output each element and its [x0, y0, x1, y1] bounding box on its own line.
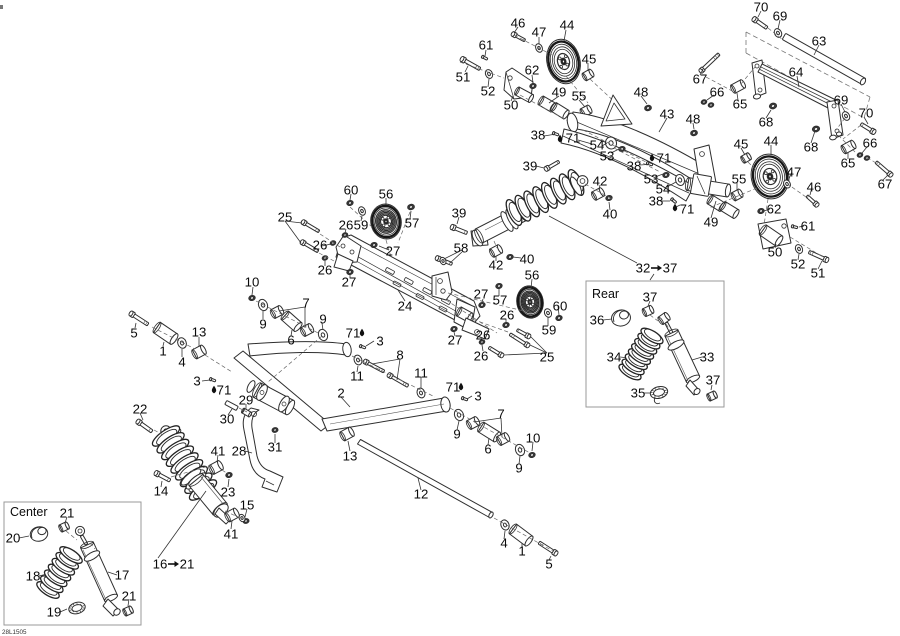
svg-text:47: 47	[532, 25, 547, 40]
svg-text:27: 27	[448, 333, 463, 348]
svg-text:19: 19	[47, 605, 62, 620]
svg-text:46: 46	[807, 180, 822, 195]
svg-text:4: 4	[178, 355, 185, 370]
svg-text:21: 21	[60, 506, 75, 521]
svg-text:1: 1	[518, 544, 525, 559]
svg-text:51: 51	[456, 70, 471, 85]
svg-text:52: 52	[791, 257, 806, 272]
svg-text:53: 53	[600, 149, 615, 164]
svg-text:26: 26	[474, 349, 489, 364]
svg-text:71: 71	[657, 151, 672, 166]
svg-text:44: 44	[764, 134, 779, 149]
svg-text:9: 9	[259, 317, 266, 332]
svg-text:26: 26	[476, 328, 491, 343]
svg-text:65: 65	[733, 97, 748, 112]
svg-text:31: 31	[268, 440, 283, 455]
svg-text:3: 3	[474, 389, 481, 404]
svg-text:29: 29	[239, 393, 254, 408]
svg-text:47: 47	[787, 165, 802, 180]
svg-text:11: 11	[414, 366, 428, 381]
svg-text:61: 61	[479, 38, 494, 53]
svg-text:69: 69	[834, 93, 849, 108]
svg-text:38: 38	[649, 194, 664, 209]
svg-text:26: 26	[318, 263, 333, 278]
svg-text:41: 41	[224, 527, 239, 542]
svg-text:68: 68	[804, 140, 819, 155]
svg-text:71: 71	[217, 383, 232, 398]
svg-text:30: 30	[220, 412, 235, 427]
svg-text:16: 16	[153, 557, 168, 572]
svg-text:67: 67	[693, 72, 708, 87]
svg-text:24: 24	[398, 299, 413, 314]
svg-text:39: 39	[452, 206, 467, 221]
svg-text:65: 65	[841, 156, 856, 171]
svg-text:5: 5	[130, 326, 137, 341]
svg-text:40: 40	[603, 207, 618, 222]
svg-text:71: 71	[346, 326, 361, 341]
svg-text:49: 49	[704, 215, 719, 230]
svg-text:Rear: Rear	[592, 287, 619, 301]
svg-text:58: 58	[454, 241, 469, 256]
svg-text:52: 52	[481, 84, 496, 99]
svg-text:70: 70	[859, 106, 874, 121]
svg-text:27: 27	[342, 275, 357, 290]
svg-text:37: 37	[706, 373, 721, 388]
svg-text:66: 66	[710, 85, 725, 100]
svg-text:5: 5	[545, 557, 552, 572]
svg-text:13: 13	[343, 449, 358, 464]
svg-text:27: 27	[386, 244, 401, 259]
svg-text:22: 22	[133, 402, 148, 417]
svg-text:2: 2	[337, 386, 344, 401]
svg-text:17: 17	[115, 568, 130, 583]
svg-text:13: 13	[192, 325, 207, 340]
svg-text:56: 56	[525, 268, 540, 283]
svg-text:46: 46	[511, 16, 526, 31]
svg-text:42: 42	[489, 258, 504, 273]
svg-text:45: 45	[734, 137, 749, 152]
svg-text:7: 7	[302, 296, 309, 311]
svg-text:62: 62	[767, 202, 782, 217]
svg-text:60: 60	[344, 183, 359, 198]
svg-text:37: 37	[663, 261, 678, 276]
svg-text:8: 8	[396, 348, 403, 363]
svg-text:9: 9	[319, 312, 326, 327]
svg-text:7: 7	[497, 407, 504, 422]
svg-text:18: 18	[26, 569, 41, 584]
svg-text:42: 42	[593, 174, 608, 189]
svg-text:11: 11	[350, 369, 364, 384]
svg-text:25: 25	[278, 210, 293, 225]
svg-text:35: 35	[631, 386, 646, 401]
svg-text:21: 21	[122, 589, 137, 604]
svg-text:43: 43	[660, 107, 675, 122]
svg-text:57: 57	[405, 216, 420, 231]
svg-text:28L1505: 28L1505	[2, 629, 27, 636]
svg-text:56: 56	[379, 187, 394, 202]
svg-text:37: 37	[643, 290, 658, 305]
svg-text:23: 23	[221, 485, 236, 500]
svg-text:48: 48	[634, 85, 649, 100]
svg-text:40: 40	[520, 252, 535, 267]
svg-text:44: 44	[560, 18, 575, 33]
svg-text:51: 51	[811, 266, 826, 281]
svg-text:21: 21	[180, 557, 195, 572]
svg-text:67: 67	[878, 177, 893, 192]
svg-text:33: 33	[700, 350, 715, 365]
svg-text:28: 28	[232, 444, 247, 459]
svg-text:26: 26	[339, 218, 354, 233]
svg-text:66: 66	[863, 136, 878, 151]
svg-text:15: 15	[240, 498, 255, 513]
svg-text:9: 9	[453, 427, 460, 442]
svg-text:63: 63	[812, 34, 827, 49]
svg-text:68: 68	[759, 115, 774, 130]
svg-text:59: 59	[542, 323, 557, 338]
svg-text:69: 69	[773, 9, 788, 24]
svg-text:55: 55	[732, 172, 747, 187]
svg-text:50: 50	[504, 98, 519, 113]
svg-text:25: 25	[540, 350, 555, 365]
svg-text:9: 9	[515, 461, 522, 476]
svg-text:39: 39	[523, 159, 538, 174]
svg-text:38: 38	[531, 128, 546, 143]
svg-text:34: 34	[607, 350, 622, 365]
svg-text:45: 45	[582, 52, 597, 67]
svg-text:26: 26	[313, 238, 328, 253]
svg-text:27: 27	[474, 287, 489, 302]
svg-text:59: 59	[354, 218, 369, 233]
svg-text:10: 10	[245, 275, 260, 290]
svg-text:26: 26	[500, 308, 515, 323]
svg-text:14: 14	[154, 484, 169, 499]
svg-text:6: 6	[287, 333, 294, 348]
svg-text:61: 61	[801, 219, 816, 234]
svg-text:49: 49	[552, 85, 567, 100]
svg-text:70: 70	[754, 0, 769, 15]
svg-text:6: 6	[484, 442, 491, 457]
svg-text:48: 48	[686, 112, 701, 127]
svg-text:50: 50	[768, 245, 783, 260]
svg-text:10: 10	[526, 431, 541, 446]
svg-text:71: 71	[446, 380, 461, 395]
svg-text:41: 41	[211, 444, 226, 459]
svg-text:32: 32	[636, 261, 651, 276]
svg-text:Center: Center	[10, 505, 48, 519]
svg-text:71: 71	[680, 202, 695, 217]
svg-text:62: 62	[525, 63, 540, 78]
svg-text:4: 4	[500, 536, 507, 551]
svg-text:12: 12	[414, 487, 429, 502]
svg-text:71: 71	[566, 131, 581, 146]
svg-text:55: 55	[572, 89, 587, 104]
svg-text:64: 64	[789, 65, 804, 80]
svg-text:1: 1	[159, 344, 166, 359]
svg-text:3: 3	[193, 374, 200, 389]
svg-text:60: 60	[553, 299, 568, 314]
svg-text:3: 3	[376, 334, 383, 349]
svg-text:20: 20	[6, 531, 21, 546]
svg-text:38: 38	[627, 159, 642, 174]
svg-text:36: 36	[590, 313, 605, 328]
svg-text:57: 57	[493, 293, 508, 308]
